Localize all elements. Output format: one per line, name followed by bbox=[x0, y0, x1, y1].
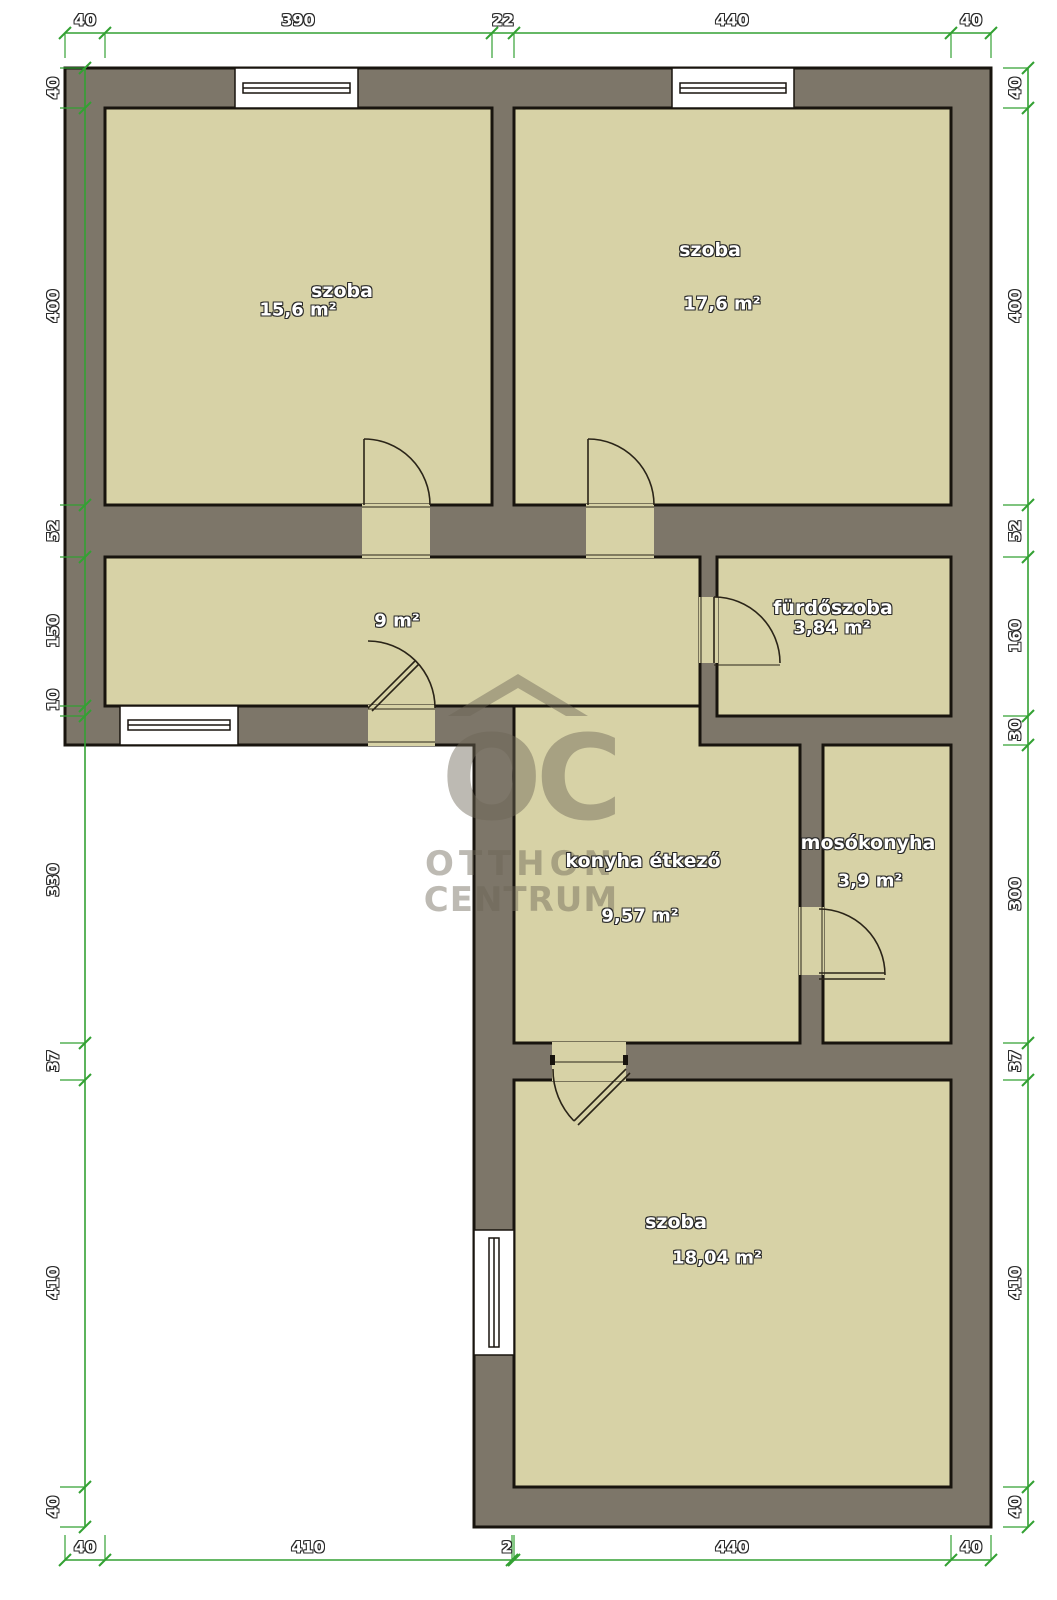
room-area-label: 9 m² bbox=[374, 611, 419, 632]
window-symbol bbox=[672, 68, 794, 108]
dimension-label: 37 bbox=[1006, 1050, 1025, 1072]
room-area-label: 3,9 m² bbox=[838, 871, 903, 892]
dimension-label: 400 bbox=[1006, 289, 1025, 322]
room-hall bbox=[105, 557, 700, 706]
room-area-label: 17,6 m² bbox=[683, 294, 760, 315]
room-area-label: 9,57 m² bbox=[601, 906, 678, 927]
door-opening bbox=[362, 504, 430, 558]
dimension-label: 40 bbox=[44, 1496, 63, 1518]
dimension-label: 10 bbox=[44, 689, 63, 711]
room-name-label: mosókonyha bbox=[801, 832, 936, 854]
dimension-label: 37 bbox=[44, 1050, 63, 1072]
room-szoba-bottom bbox=[514, 1080, 951, 1487]
dimension-label: 22 bbox=[492, 11, 514, 30]
window-symbol bbox=[120, 706, 238, 745]
room-name-label: konyha étkező bbox=[565, 850, 720, 872]
dimension-label: 390 bbox=[281, 11, 314, 30]
dimension-label: 410 bbox=[291, 1538, 324, 1557]
dimension-label: 40 bbox=[960, 11, 982, 30]
door-opening bbox=[699, 597, 718, 663]
window-symbol bbox=[235, 68, 358, 108]
door-opening bbox=[368, 705, 435, 746]
dimension-label: 410 bbox=[1006, 1266, 1025, 1299]
dimension-label: 40 bbox=[1006, 77, 1025, 99]
room-name-label: fürdőszoba bbox=[773, 597, 893, 619]
floorplan-canvas: OC OTTHON CENTRUM szoba 15,6 m² szoba 17… bbox=[0, 0, 1057, 1600]
dimension-label: 160 bbox=[1006, 619, 1025, 652]
dimension-label: 52 bbox=[1006, 520, 1025, 542]
room-area-label: 3,84 m² bbox=[793, 618, 870, 639]
dimension-label: 440 bbox=[715, 1538, 748, 1557]
room-name-label: szoba bbox=[645, 1211, 707, 1233]
dimension-label: 40 bbox=[74, 1538, 96, 1557]
room-mosokonyha bbox=[823, 745, 951, 1043]
dimension-label: 40 bbox=[1006, 1496, 1025, 1518]
dimension-label: 330 bbox=[44, 863, 63, 896]
dimension-label: 52 bbox=[44, 520, 63, 542]
door-opening bbox=[586, 504, 654, 558]
room-area-label: 15,6 m² bbox=[259, 300, 336, 321]
window-symbol bbox=[474, 1230, 514, 1355]
room-area-label: 18,04 m² bbox=[672, 1248, 762, 1269]
dimension-label: 40 bbox=[960, 1538, 982, 1557]
watermark-line2: CENTRUM bbox=[424, 883, 618, 917]
dimension-label: 300 bbox=[1006, 877, 1025, 910]
door-opening bbox=[799, 907, 824, 975]
dimension-label: 2 bbox=[501, 1538, 512, 1557]
dimension-label: 150 bbox=[44, 614, 63, 647]
dimension-label: 400 bbox=[44, 289, 63, 322]
room-name-label: szoba bbox=[679, 239, 741, 261]
dimension-label: 440 bbox=[715, 11, 748, 30]
dimension-label: 410 bbox=[44, 1266, 63, 1299]
dimension-label: 40 bbox=[74, 11, 96, 30]
dimension-label: 30 bbox=[1006, 719, 1025, 741]
dimension-label: 40 bbox=[44, 77, 63, 99]
otthon-centrum-logo: OC bbox=[442, 719, 617, 837]
